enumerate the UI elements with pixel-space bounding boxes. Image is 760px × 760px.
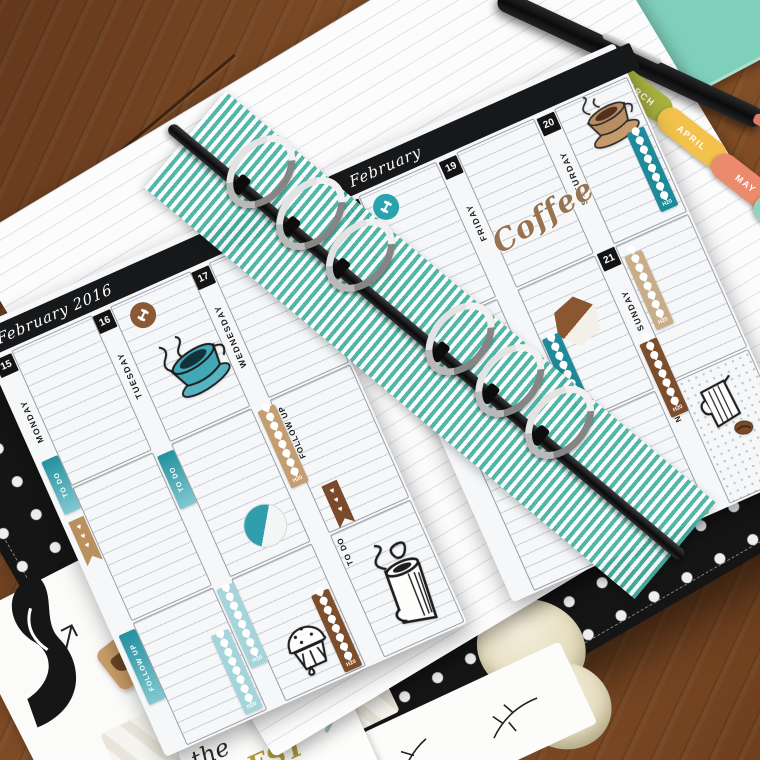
tab-may-label: MAY <box>734 172 759 194</box>
photo-planner-on-desk: FEBRUARY the BEST MARCH APRIL MAY Februa… <box>0 0 760 760</box>
pen-tip <box>752 112 760 128</box>
